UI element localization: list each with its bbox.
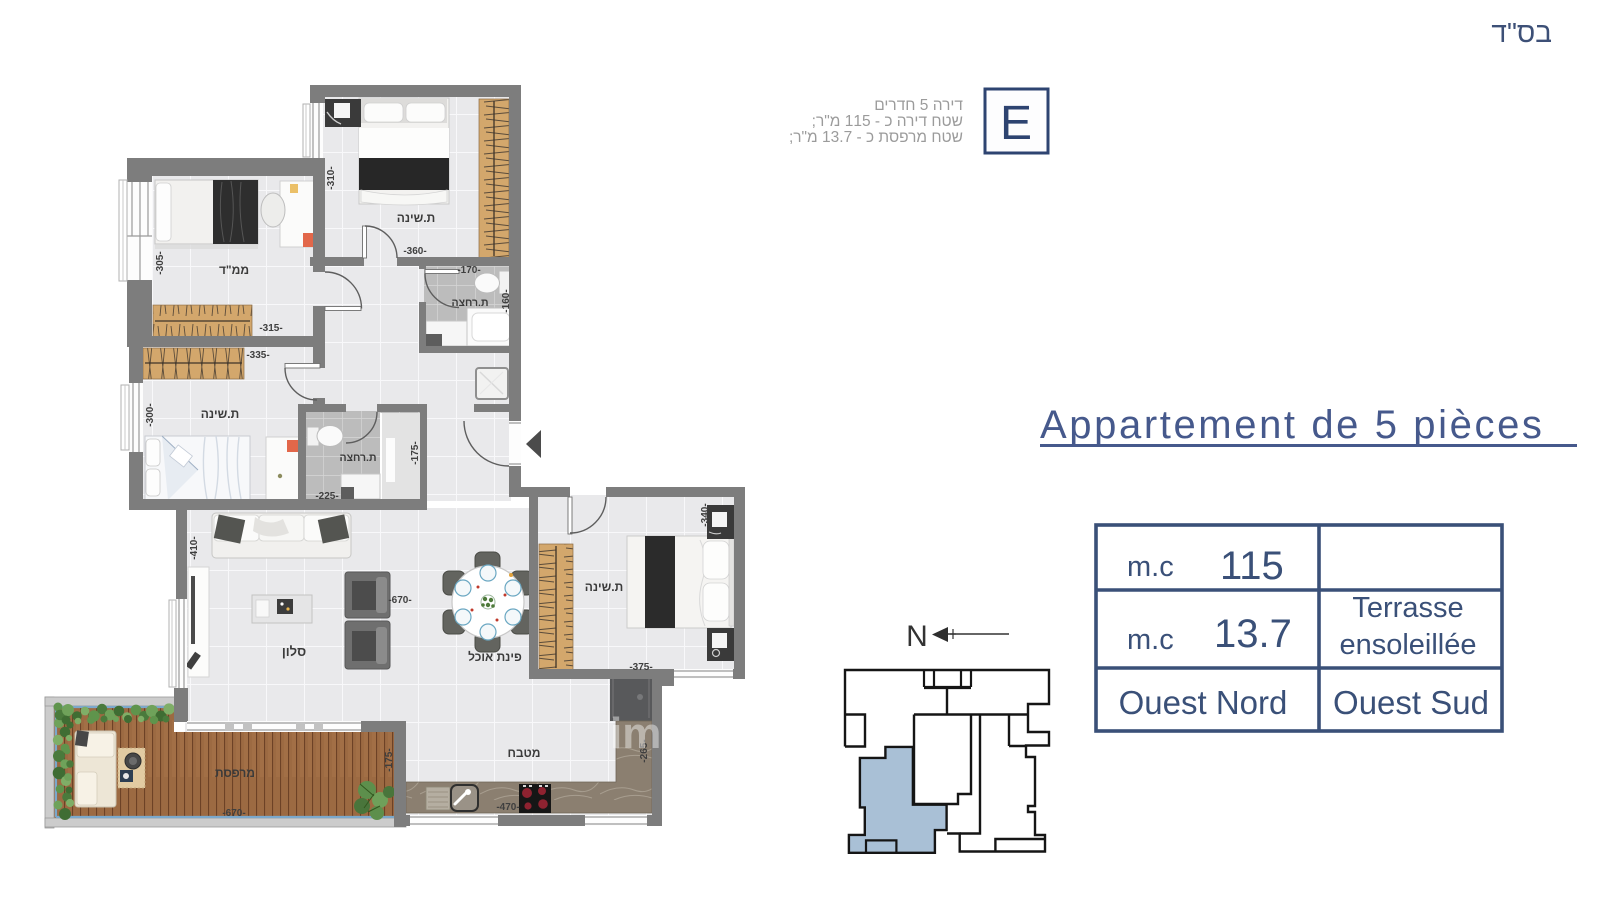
svg-text:E: E: [1000, 97, 1032, 150]
svg-text:סלון: סלון: [282, 644, 306, 659]
svg-text:ת.רחצה: ת.רחצה: [339, 452, 376, 464]
svg-text:-340-: -340-: [700, 503, 711, 526]
svg-text:m.c: m.c: [1127, 551, 1174, 583]
svg-text:ממ"ד: ממ"ד: [219, 263, 249, 277]
svg-text:מרפסת: מרפסת: [215, 766, 255, 780]
svg-text:Ouest Sud: Ouest Sud: [1333, 684, 1489, 721]
svg-text:-375-: -375-: [629, 662, 652, 673]
svg-text:115: 115: [1220, 544, 1284, 588]
svg-text:-225-: -225-: [315, 491, 338, 502]
svg-text:-360-: -360-: [403, 246, 426, 257]
svg-text:-670-: -670-: [222, 808, 245, 819]
svg-text:ת.שינה: ת.שינה: [585, 580, 624, 594]
svg-text:-335-: -335-: [246, 350, 269, 361]
svg-text:-170-: -170-: [457, 265, 480, 276]
svg-text:Terrasse: Terrasse: [1352, 592, 1463, 624]
svg-text:ת.שינה: ת.שינה: [201, 407, 240, 421]
svg-text:ensoleillée: ensoleillée: [1339, 629, 1476, 661]
svg-text:m.c: m.c: [1127, 624, 1174, 656]
svg-text:13.7: 13.7: [1214, 612, 1292, 656]
svg-text:שטח דירה כ - 115 מ"ר;: שטח דירה כ - 115 מ"ר;: [812, 113, 963, 130]
svg-text:-670-: -670-: [388, 595, 411, 606]
svg-text:-315-: -315-: [259, 323, 282, 334]
svg-text:דירה 5 חדרים: דירה 5 חדרים: [874, 97, 963, 114]
svg-text:מטבח: מטבח: [507, 746, 540, 760]
svg-text:פינת אוכל: פינת אוכל: [468, 650, 522, 664]
svg-text:-175-: -175-: [410, 441, 421, 464]
svg-text:-160-: -160-: [501, 289, 512, 312]
svg-text:im: im: [610, 709, 661, 758]
svg-text:-310-: -310-: [326, 166, 337, 189]
svg-text:-305-: -305-: [155, 251, 166, 274]
svg-text:-470-: -470-: [496, 802, 519, 813]
svg-text:בס"ד: בס"ד: [1491, 17, 1552, 48]
svg-text:שטח מרפסת כ - 13.7 מ"ר;: שטח מרפסת כ - 13.7 מ"ר;: [789, 129, 963, 146]
svg-text:-175-: -175-: [384, 748, 395, 771]
svg-text:ת.שינה: ת.שינה: [397, 211, 436, 225]
svg-text:N: N: [906, 620, 928, 653]
svg-text:ת.רחצה: ת.רחצה: [451, 297, 488, 309]
svg-text:-410-: -410-: [189, 536, 200, 559]
svg-text:-300-: -300-: [145, 403, 156, 426]
svg-text:Ouest Nord: Ouest Nord: [1119, 684, 1288, 721]
svg-text:Appartement de 5 pièces: Appartement de 5 pièces: [1040, 403, 1545, 447]
